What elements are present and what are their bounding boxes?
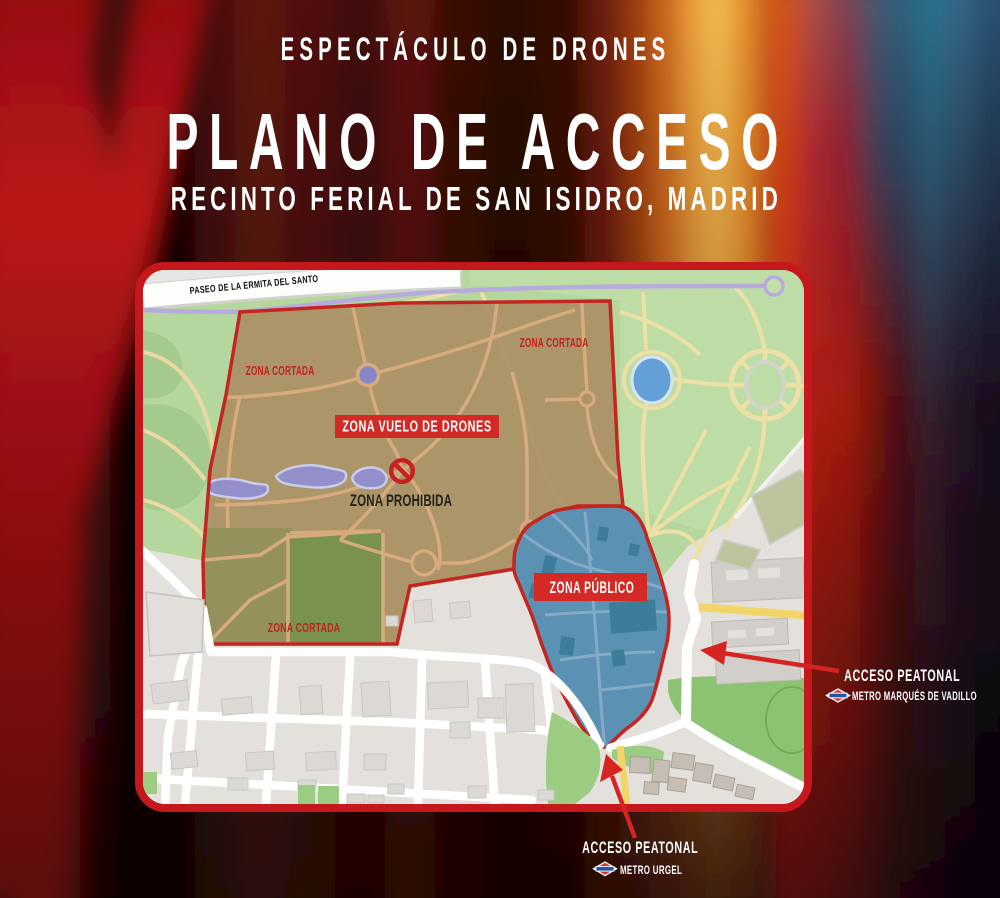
svg-text:ZONA VUELO DE DRONES: ZONA VUELO DE DRONES	[342, 418, 491, 435]
svg-text:ZONA PÚBLICO: ZONA PÚBLICO	[550, 576, 635, 596]
svg-text:ZONA PROHIBIDA: ZONA PROHIBIDA	[350, 492, 452, 511]
svg-text:ZONA CORTADA: ZONA CORTADA	[268, 621, 341, 635]
svg-text:ZONA CORTADA: ZONA CORTADA	[246, 364, 315, 378]
svg-text:ZONA CORTADA: ZONA CORTADA	[520, 336, 589, 350]
